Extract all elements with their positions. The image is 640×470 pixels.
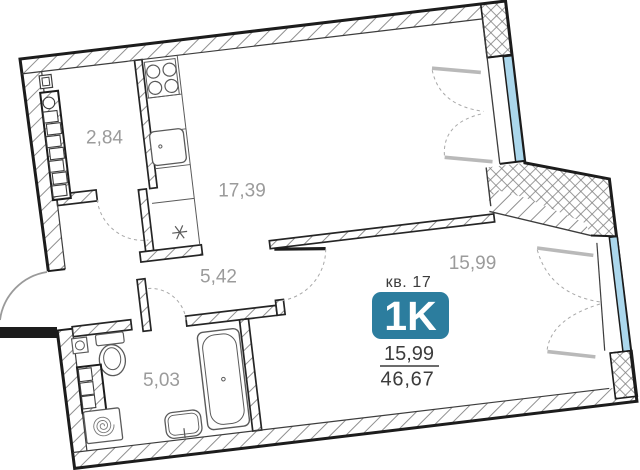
svg-text:1K: 1K <box>384 293 437 339</box>
svg-text:2,84: 2,84 <box>86 128 123 149</box>
svg-text:5,03: 5,03 <box>143 370 180 391</box>
svg-text:15,99: 15,99 <box>449 253 497 274</box>
svg-text:46,67: 46,67 <box>380 369 434 391</box>
svg-text:кв. 17: кв. 17 <box>386 274 432 291</box>
svg-text:17,39: 17,39 <box>218 181 266 202</box>
svg-text:5,42: 5,42 <box>200 267 237 288</box>
svg-text:15,99: 15,99 <box>384 343 434 365</box>
